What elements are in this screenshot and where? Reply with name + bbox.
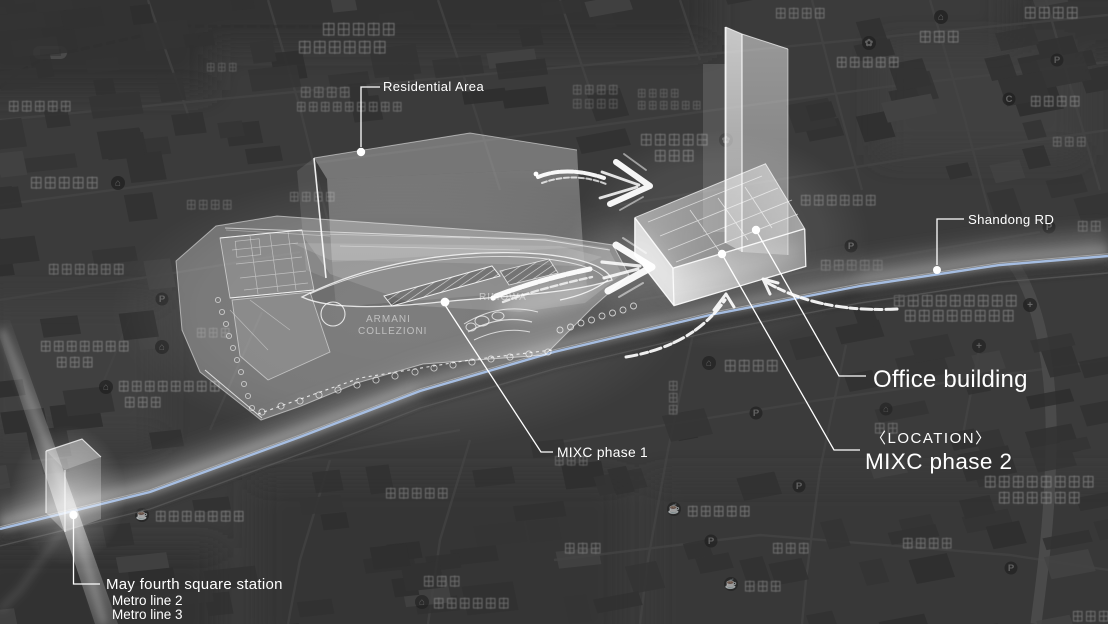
svg-text:⌂: ⌂ <box>115 178 121 189</box>
svg-text:Shandong RD: Shandong RD <box>968 212 1054 227</box>
svg-text:Residential Area: Residential Area <box>383 79 484 94</box>
svg-text:☕: ☕ <box>725 577 737 590</box>
svg-text:May fourth square station: May fourth square station <box>106 576 283 593</box>
svg-text:⌂: ⌂ <box>706 358 712 369</box>
svg-text:P: P <box>753 408 760 419</box>
svg-text:C: C <box>1006 94 1013 105</box>
svg-text:COLLEZIONI: COLLEZIONI <box>358 326 427 337</box>
svg-text:⌂: ⌂ <box>419 597 425 608</box>
svg-text:⌂: ⌂ <box>883 404 889 415</box>
svg-text:☕: ☕ <box>668 502 680 515</box>
svg-text:✿: ✿ <box>865 38 874 49</box>
svg-text:MIXC phase 2: MIXC phase 2 <box>865 449 1012 474</box>
svg-text:P: P <box>796 481 803 492</box>
svg-text:P: P <box>708 536 715 547</box>
svg-text:MIXC phase 1: MIXC phase 1 <box>557 445 648 460</box>
svg-text:ARMANI: ARMANI <box>366 314 411 325</box>
svg-text:⌂: ⌂ <box>103 382 109 393</box>
svg-text:〈LOCATION〉: 〈LOCATION〉 <box>871 430 992 447</box>
svg-text:Office building: Office building <box>873 366 1028 393</box>
svg-text:⌂: ⌂ <box>938 12 944 23</box>
svg-text:Metro line 2: Metro line 2 <box>112 593 183 608</box>
svg-text:Metro line 3: Metro line 3 <box>112 607 183 622</box>
svg-text:+: + <box>1027 300 1033 311</box>
svg-text:+: + <box>976 341 982 352</box>
svg-text:P: P <box>1054 55 1061 66</box>
svg-text:P: P <box>1008 563 1015 574</box>
